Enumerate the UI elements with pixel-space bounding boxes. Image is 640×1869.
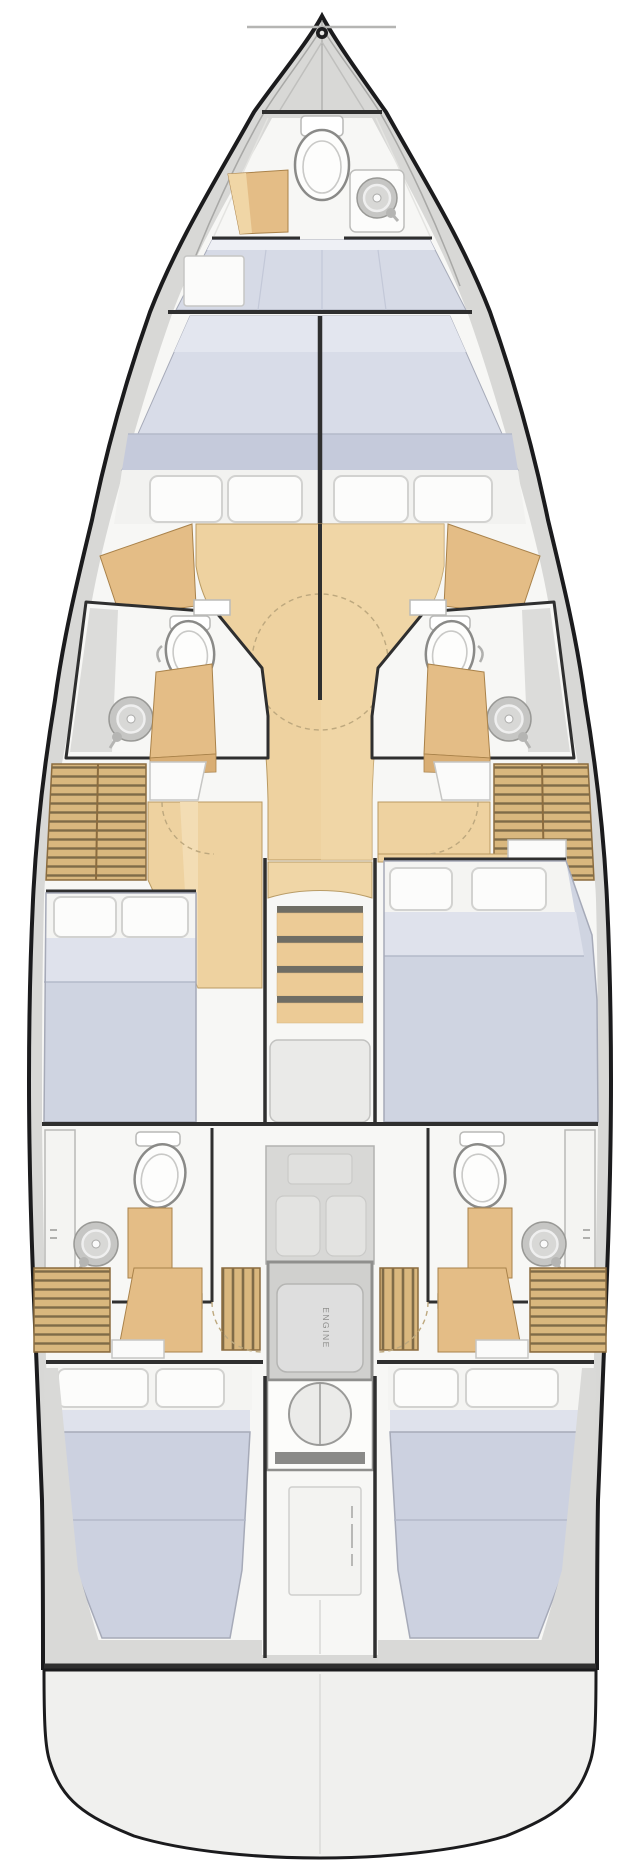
head-door (410, 600, 446, 615)
engine-hatch-icon (277, 1284, 363, 1372)
sink-drain (540, 1240, 548, 1248)
shelf (476, 1340, 528, 1358)
bed-sheet-band (207, 240, 435, 250)
floor-plan-canvas: ENGINE (0, 0, 640, 1869)
pillow (54, 897, 116, 937)
starboard-mid-cabin (384, 859, 598, 1122)
shelf (434, 762, 490, 800)
engine-label: ENGINE (321, 1307, 331, 1349)
outboard-locker (45, 1130, 75, 1288)
starboard-aft-cabin (378, 1366, 596, 1666)
stair-treads (277, 906, 363, 1023)
shelf (112, 1340, 164, 1358)
forepeak-berth (168, 240, 472, 312)
bed-sheet-band (44, 938, 196, 982)
pillow (466, 1369, 558, 1407)
under-stair-locker (270, 1040, 370, 1122)
deck-strip (378, 1640, 594, 1666)
hatch (288, 1154, 352, 1184)
bed-sheet-band (384, 912, 584, 956)
engine-access-panel (266, 1146, 374, 1264)
sink-drain (505, 715, 513, 723)
port-aft-cabin (44, 1366, 262, 1666)
bow-fitting-pin (320, 31, 325, 36)
linen-closet (508, 840, 566, 860)
deck-strip (46, 1640, 262, 1666)
pillow (122, 897, 188, 937)
hatch (326, 1196, 366, 1256)
vanity (150, 664, 216, 758)
pillow (228, 476, 302, 522)
bed-sheet-band (390, 1410, 588, 1432)
pillow (334, 476, 408, 522)
louver-wardrobe (34, 1268, 110, 1352)
head-door (194, 600, 230, 615)
stern-platform (44, 1666, 596, 1858)
liferaft-locker-icon (289, 1487, 361, 1595)
engine-room-sill (275, 1452, 365, 1464)
pillow (150, 476, 222, 522)
port-mid-cabin (44, 891, 196, 1122)
pillow (156, 1369, 224, 1407)
sink-drain (373, 194, 381, 202)
shelf (150, 762, 206, 800)
pillow (58, 1369, 148, 1407)
hatch (276, 1196, 320, 1256)
pillow (472, 868, 546, 910)
engine-room: ENGINE (267, 1262, 373, 1470)
louver-wardrobe (530, 1268, 606, 1352)
forward-vberth (114, 316, 526, 524)
pillow (414, 476, 492, 522)
sink-drain (92, 1240, 100, 1248)
bed-sheet-band (52, 1410, 250, 1432)
pillow (394, 1369, 458, 1407)
side-seat (184, 256, 244, 306)
yacht-floor-plan: ENGINE (0, 0, 640, 1869)
sink-drain (127, 715, 135, 723)
pillow (390, 868, 452, 910)
vanity (424, 664, 490, 758)
cabin-entry-floor (378, 802, 490, 858)
outboard-locker (565, 1130, 595, 1288)
